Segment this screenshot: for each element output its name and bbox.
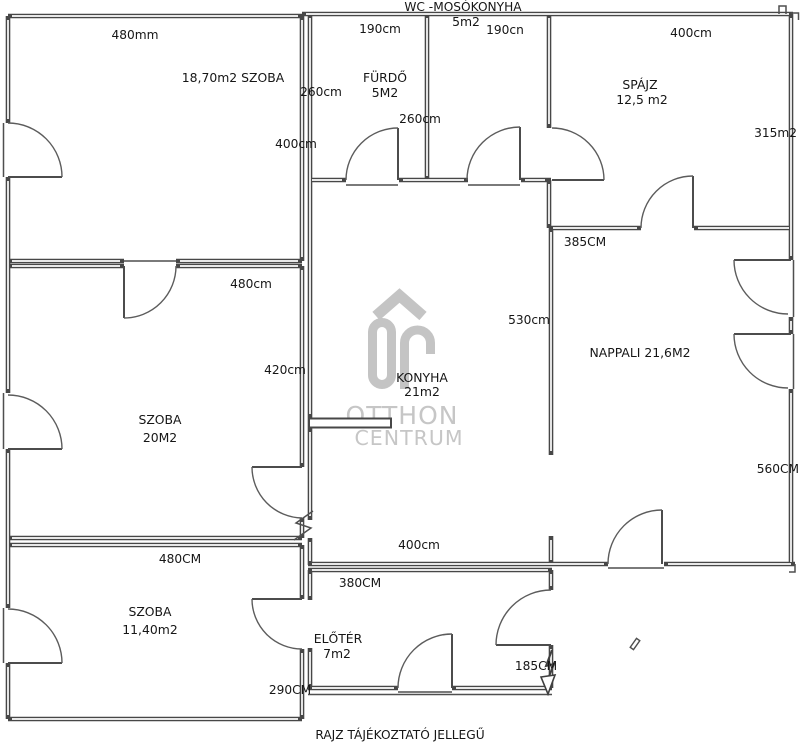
room-label-szoba-nagy: 18,70m2 SZOBA xyxy=(182,70,285,85)
dim-eloter-width: 380CM xyxy=(339,576,381,590)
dim-szoba-nagy-height: 400cm xyxy=(275,137,317,151)
room-area-furdo: 5M2 xyxy=(372,85,398,100)
dim-eloter-height: 185CM xyxy=(515,659,557,673)
room-label-eloter: ELŐTÉR xyxy=(314,631,363,646)
dim-szoba-nagy-width: 480mm xyxy=(111,28,158,42)
dim-wc-height: 260cm xyxy=(399,112,441,126)
room-area-konyha: 21m2 xyxy=(404,384,440,399)
dim-spajz-height: 315m2 xyxy=(754,126,797,140)
floorplan-drawing: OTTHON CENTRUM WC -MOSÓKONYHA RAJZ TÁJÉK… xyxy=(0,0,800,742)
dim-konyha-width: 400cm xyxy=(398,538,440,552)
watermark-roof-icon xyxy=(376,296,423,317)
dim-szoba-kozepso-height: 420cm xyxy=(264,363,306,377)
room-label-nappali: NAPPALI 21,6M2 xyxy=(589,345,690,360)
kitchen-stub-wall xyxy=(309,419,391,428)
plan-title: WC -MOSÓKONYHA xyxy=(404,0,522,14)
room-label-konyha: KONYHA xyxy=(396,370,448,385)
dim-furdo-height: 260cm xyxy=(300,85,342,99)
room-area-szoba-kozepso: 20M2 xyxy=(143,430,177,445)
watermark-o-icon xyxy=(373,323,392,385)
room-label-szoba-kis: SZOBA xyxy=(128,604,172,619)
dim-spajz-width: 400cm xyxy=(670,26,712,40)
room-label-spajz: SPÁJZ xyxy=(622,77,657,92)
dim-wc-width: 190cn xyxy=(486,23,524,37)
room-label-szoba-kozepso: SZOBA xyxy=(138,412,182,427)
room-area-spajz: 12,5 m2 xyxy=(616,92,667,107)
dim-konyha-height: 530cm xyxy=(508,313,550,327)
room-area-wc: 5m2 xyxy=(452,14,480,29)
plan-footer-note: RAJZ TÁJÉKOZTATÓ JELLEGŰ xyxy=(315,727,484,742)
room-label-furdo: FÜRDŐ xyxy=(363,69,407,85)
dim-szoba-kozepso-width: 480cm xyxy=(230,277,272,291)
dim-furdo-width: 190cm xyxy=(359,22,401,36)
room-area-szoba-kis: 11,40m2 xyxy=(122,622,177,637)
dim-nappali-height: 560CM xyxy=(757,462,799,476)
floorplan-page: OTTHON CENTRUM WC -MOSÓKONYHA RAJZ TÁJÉK… xyxy=(0,0,800,742)
room-area-eloter: 7m2 xyxy=(323,646,351,661)
dim-szoba-kis-height: 290CM xyxy=(269,683,311,697)
watermark-line2: CENTRUM xyxy=(354,426,463,450)
exterior-mark-icon xyxy=(630,638,640,649)
dim-szoba-kis-width: 480CM xyxy=(159,552,201,566)
dim-nappali-width: 385CM xyxy=(564,235,606,249)
